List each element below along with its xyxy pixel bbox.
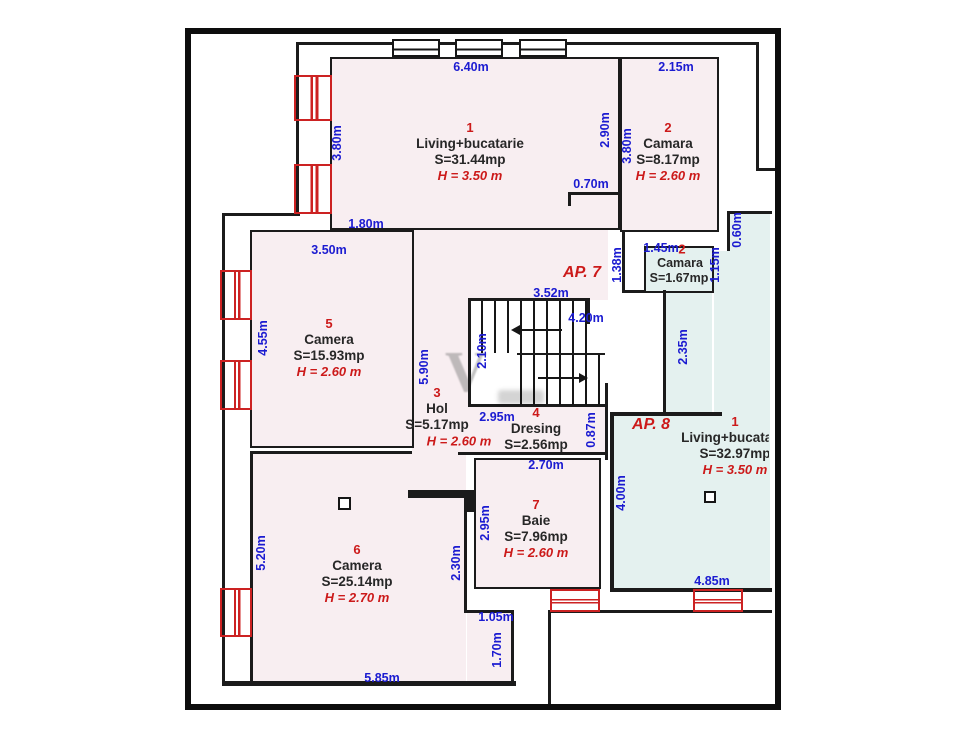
dim-label: 2.35m <box>676 329 690 364</box>
room-name: Camera <box>294 332 365 348</box>
dim-label: 0.87m <box>584 412 598 447</box>
room-number: 1 <box>416 120 524 136</box>
room-label-camara-ap7: 2 Camara S=8.17mp H = 2.60 m <box>636 120 701 184</box>
dim-label: 5.90m <box>417 349 431 384</box>
dim-label: 2.90m <box>598 112 612 147</box>
room-number: 3 <box>405 385 468 401</box>
room-name: Camara <box>636 136 701 152</box>
room-label-camera6: 6 Camera S=25.14mp H = 2.70 m <box>322 542 393 606</box>
dim-label: 2.95m <box>479 410 514 424</box>
room-label-hol: 3 Hol S=5.17mp <box>405 385 468 433</box>
dim-label: 0.70m <box>573 177 608 191</box>
room-name: Baie <box>504 513 569 529</box>
dim-label: 2.10m <box>475 333 489 368</box>
room-label-living-ap7: 1 Living+bucatarie S=31.44mp H = 3.50 m <box>416 120 524 184</box>
room-label-living-ap8: 1 Living+bucatarie S=32.97mp H = 3.50 m <box>681 414 769 478</box>
dim-label: 5.20m <box>254 535 268 570</box>
room-number: 2 <box>678 242 685 257</box>
room-number: 5 <box>294 316 365 332</box>
room-label-baie: 7 Baie S=7.96mp H = 2.60 m <box>504 497 569 561</box>
dim-label: 1.45m <box>643 241 678 255</box>
dim-label: 1.15m <box>708 247 722 282</box>
room-area: S=5.17mp <box>405 417 468 433</box>
dim-label: 2.95m <box>478 505 492 540</box>
room-number: 6 <box>322 542 393 558</box>
room-area: S=2.56mp <box>504 437 567 453</box>
room-number: 1 <box>681 414 769 430</box>
room-area: S=7.96mp <box>504 529 569 545</box>
room-area: S=32.97mp <box>681 446 769 462</box>
room-area: S=15.93mp <box>294 348 365 364</box>
dim-label: 1.70m <box>490 632 504 667</box>
room-name: Hol <box>405 401 468 417</box>
room-height: H = 2.60 m <box>427 434 492 449</box>
room-label-living-ap8-clip: 1 Living+bucatarie S=32.97mp H = 3.50 m <box>640 414 769 482</box>
room-name: Camara <box>657 256 703 270</box>
room-area: S=8.17mp <box>636 152 701 168</box>
room-area: S=1.67mp <box>650 271 709 285</box>
dim-label: 1.80m <box>348 217 383 231</box>
room-height: H = 2.70 m <box>322 590 393 606</box>
room-height: H = 2.60 m <box>504 545 569 561</box>
room-height: H = 2.60 m <box>294 364 365 380</box>
dim-label: 3.52m <box>533 286 568 300</box>
room-height: H = 2.60 m <box>636 168 701 184</box>
room-height: H = 3.50 m <box>681 462 769 478</box>
dim-label: 3.80m <box>330 125 344 160</box>
dim-label: 1.38m <box>610 247 624 282</box>
room-name: Living+bucatarie <box>681 430 769 446</box>
dim-label: 4.00m <box>614 475 628 510</box>
dim-label: 2.15m <box>658 60 693 74</box>
room-area: S=25.14mp <box>322 574 393 590</box>
floor-plan: V <box>0 0 967 745</box>
dim-label: 3.80m <box>620 128 634 163</box>
dim-label: 2.70m <box>528 458 563 472</box>
room-name: Living+bucatarie <box>416 136 524 152</box>
room-name: Camera <box>322 558 393 574</box>
dim-label: 1.05m <box>478 610 513 624</box>
dim-label: 4.85m <box>694 574 729 588</box>
dim-label: 4.55m <box>256 320 270 355</box>
room-number: 7 <box>504 497 569 513</box>
dim-label: 6.40m <box>453 60 488 74</box>
dim-label: 0.60m <box>730 212 744 247</box>
room-label-camera5: 5 Camera S=15.93mp H = 2.60 m <box>294 316 365 380</box>
dim-label: 2.30m <box>449 545 463 580</box>
room-number: 2 <box>636 120 701 136</box>
dim-label: 3.50m <box>311 243 346 257</box>
room-height: H = 3.50 m <box>416 168 524 184</box>
dim-label: 5.85m <box>364 671 399 685</box>
apartment-label-ap7: AP. 7 <box>563 264 601 282</box>
dim-label: 4.20m <box>568 311 603 325</box>
room-area: S=31.44mp <box>416 152 524 168</box>
